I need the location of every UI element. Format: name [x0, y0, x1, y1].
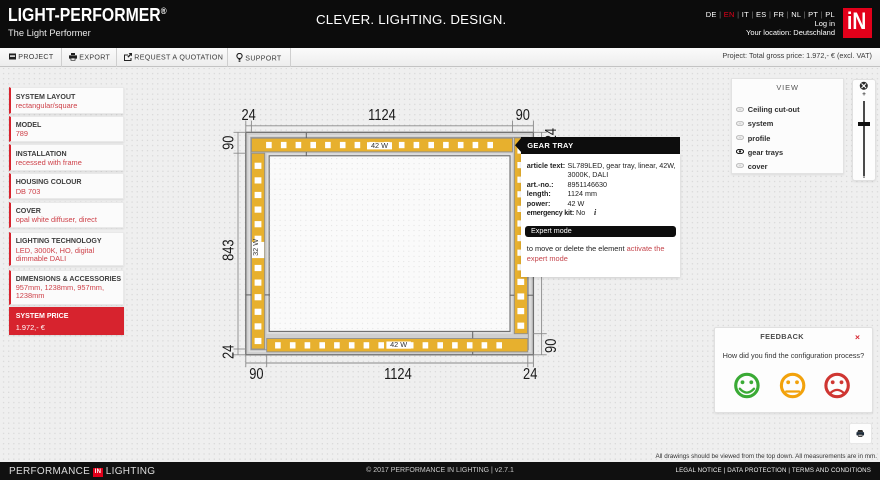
- svg-text:32 W: 32 W: [251, 239, 260, 256]
- svg-text:90: 90: [543, 339, 560, 353]
- svg-text:42 W: 42 W: [390, 340, 407, 349]
- svg-text:843: 843: [220, 239, 237, 261]
- svg-text:90: 90: [249, 366, 263, 383]
- svg-text:24: 24: [241, 107, 255, 124]
- svg-text:90: 90: [516, 107, 530, 124]
- svg-text:24: 24: [221, 345, 238, 359]
- svg-text:42 W: 42 W: [371, 141, 388, 150]
- svg-text:1124: 1124: [384, 366, 412, 383]
- svg-text:1124: 1124: [368, 107, 396, 124]
- svg-text:24: 24: [523, 366, 537, 383]
- svg-text:90: 90: [221, 135, 238, 149]
